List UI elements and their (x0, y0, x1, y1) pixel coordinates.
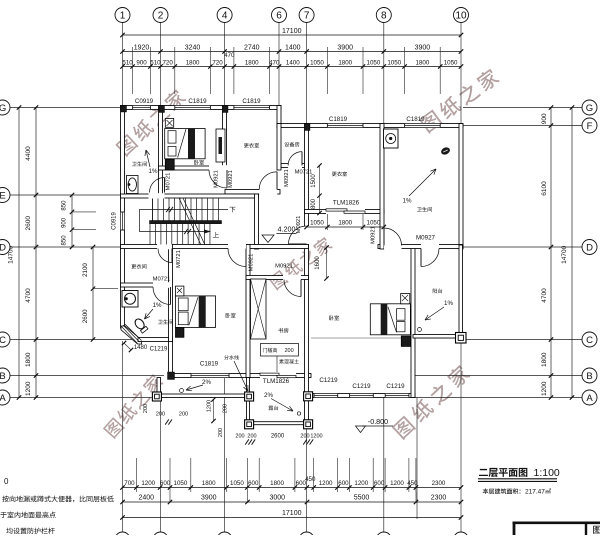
svg-text:1800: 1800 (245, 60, 259, 67)
svg-text:1%: 1% (149, 168, 158, 175)
svg-text:600: 600 (374, 480, 385, 487)
svg-text:200: 200 (218, 428, 224, 437)
svg-text:M0921: M0921 (249, 254, 255, 272)
svg-text:1%: 1% (153, 302, 162, 309)
svg-text:C: C (0, 335, 6, 346)
svg-text:2300: 2300 (431, 495, 447, 502)
svg-text:600: 600 (160, 480, 171, 487)
svg-text:1200: 1200 (141, 480, 155, 487)
svg-text:1050: 1050 (174, 480, 188, 487)
svg-text:M0721: M0721 (153, 277, 171, 283)
svg-text:M0721: M0721 (176, 250, 182, 268)
svg-text:2600: 2600 (271, 434, 285, 440)
svg-text:1050: 1050 (367, 220, 381, 227)
svg-text:1%: 1% (444, 300, 453, 307)
svg-text:1200: 1200 (354, 480, 368, 487)
svg-text:900: 900 (541, 113, 548, 124)
svg-text:10: 10 (455, 11, 467, 22)
svg-text:14700: 14700 (561, 245, 568, 263)
svg-text:1800: 1800 (25, 352, 32, 367)
svg-text:A: A (0, 393, 6, 404)
svg-text:200: 200 (156, 412, 165, 418)
svg-text:1800: 1800 (541, 352, 548, 367)
svg-text:TLM1826: TLM1826 (263, 378, 290, 385)
svg-text:1500: 1500 (311, 174, 317, 188)
svg-text:M0721: M0721 (295, 170, 313, 176)
svg-text:M0721: M0721 (166, 173, 172, 191)
svg-text:A: A (586, 393, 593, 404)
svg-text:M0921: M0921 (214, 170, 220, 188)
svg-text:C0919: C0919 (135, 98, 154, 105)
svg-text:F: F (587, 121, 593, 132)
svg-text:200: 200 (223, 404, 229, 413)
svg-text:2%: 2% (264, 392, 273, 399)
svg-text:7: 7 (304, 11, 310, 22)
svg-text:1600: 1600 (315, 256, 321, 270)
svg-text:3240: 3240 (185, 45, 201, 52)
svg-text:C1819: C1819 (406, 116, 425, 123)
svg-text:1800: 1800 (202, 480, 216, 487)
svg-text:2600: 2600 (25, 216, 32, 231)
svg-text:0: 0 (4, 477, 9, 486)
svg-text:850: 850 (62, 235, 68, 246)
svg-text:900: 900 (62, 217, 68, 228)
svg-text:D: D (586, 242, 593, 253)
svg-text:200: 200 (179, 412, 188, 418)
svg-text:1400: 1400 (286, 60, 300, 67)
svg-text:510: 510 (150, 60, 161, 67)
svg-text:C1819: C1819 (329, 116, 348, 123)
svg-text:3900: 3900 (201, 495, 217, 502)
svg-text:C1219: C1219 (352, 383, 371, 390)
svg-text:8: 8 (381, 11, 387, 22)
svg-text:450: 450 (305, 476, 316, 483)
svg-text:1050: 1050 (444, 60, 458, 67)
svg-text:1480: 1480 (134, 345, 148, 351)
svg-text:D: D (0, 242, 6, 253)
svg-text:200: 200 (300, 434, 309, 440)
svg-text:4700: 4700 (25, 288, 32, 303)
svg-text:1050: 1050 (310, 220, 324, 227)
svg-text:1200: 1200 (310, 434, 322, 440)
svg-text:1200: 1200 (319, 480, 333, 487)
svg-text:800: 800 (311, 198, 317, 209)
svg-text:4700: 4700 (541, 288, 548, 303)
svg-text:6: 6 (276, 11, 282, 22)
svg-text:C0919: C0919 (112, 212, 118, 230)
svg-text:M0921: M0921 (275, 264, 293, 270)
svg-text:TLM1826: TLM1826 (333, 200, 360, 207)
svg-text:17100: 17100 (282, 510, 302, 517)
svg-text:1920: 1920 (134, 45, 150, 52)
svg-text:1050: 1050 (367, 60, 381, 67)
svg-text:200: 200 (285, 348, 294, 354)
svg-text:3000: 3000 (269, 495, 285, 502)
svg-text:1%: 1% (403, 198, 412, 205)
svg-text:200: 200 (235, 434, 244, 440)
svg-text:6100: 6100 (541, 181, 548, 196)
svg-text:4400: 4400 (25, 146, 32, 161)
svg-text:1800: 1800 (416, 60, 430, 67)
svg-text:M0921: M0921 (371, 226, 377, 244)
svg-text:1050: 1050 (230, 480, 244, 487)
svg-text:700: 700 (124, 480, 135, 487)
svg-text:C1819: C1819 (188, 98, 207, 105)
svg-text:M0921: M0921 (296, 216, 302, 234)
svg-text:470: 470 (224, 52, 235, 59)
svg-text:2740: 2740 (244, 45, 260, 52)
svg-text:M0921: M0921 (284, 169, 290, 187)
svg-text:C1819: C1819 (200, 361, 219, 368)
svg-text:1800: 1800 (270, 480, 284, 487)
svg-text:1400: 1400 (285, 45, 301, 52)
svg-text:2: 2 (158, 11, 164, 22)
svg-text:C1219: C1219 (319, 377, 338, 384)
svg-text:2300: 2300 (432, 480, 446, 487)
svg-text:850: 850 (62, 200, 68, 211)
svg-text:M0921: M0921 (228, 170, 234, 188)
svg-text:1800: 1800 (338, 60, 352, 67)
svg-text:200: 200 (143, 404, 149, 413)
svg-text:C1819: C1819 (242, 98, 261, 105)
svg-text:1200: 1200 (390, 480, 404, 487)
svg-text:17100: 17100 (282, 28, 302, 35)
svg-text:G: G (586, 103, 593, 114)
svg-text:1200: 1200 (541, 381, 548, 396)
svg-text:E: E (0, 190, 6, 201)
svg-text:900: 900 (136, 60, 147, 67)
svg-text:1050: 1050 (310, 60, 324, 67)
svg-text:720: 720 (162, 60, 173, 67)
svg-text:1:100: 1:100 (534, 467, 560, 479)
svg-text:200: 200 (247, 434, 256, 440)
svg-text:C1219: C1219 (386, 383, 405, 390)
svg-text:217.47: 217.47 (525, 489, 545, 496)
svg-text:C: C (586, 335, 593, 346)
svg-text:1: 1 (120, 11, 126, 22)
svg-text:720: 720 (212, 60, 223, 67)
svg-text:2%: 2% (202, 379, 211, 386)
svg-text:G: G (0, 103, 6, 114)
svg-text:600: 600 (248, 480, 259, 487)
svg-text:470: 470 (269, 60, 280, 67)
svg-text:-0.800: -0.800 (368, 417, 388, 426)
svg-text:1200: 1200 (25, 381, 32, 396)
svg-text:4.200: 4.200 (278, 225, 296, 234)
svg-text:1050: 1050 (387, 60, 401, 67)
svg-text:B: B (586, 371, 592, 382)
svg-text:3900: 3900 (337, 45, 353, 52)
svg-text:510: 510 (122, 60, 133, 67)
svg-text:1800: 1800 (338, 220, 352, 227)
svg-text:5500: 5500 (354, 495, 370, 502)
svg-text:4: 4 (222, 11, 228, 22)
svg-text:3900: 3900 (415, 45, 431, 52)
svg-text:2400: 2400 (138, 495, 154, 502)
svg-text:1800: 1800 (186, 60, 200, 67)
svg-text:B: B (0, 371, 6, 382)
svg-text:2100: 2100 (82, 263, 89, 277)
svg-text:600: 600 (338, 480, 349, 487)
svg-text:2600: 2600 (82, 309, 89, 323)
svg-text:M0927: M0927 (416, 235, 435, 242)
svg-text:C1219: C1219 (150, 347, 168, 353)
